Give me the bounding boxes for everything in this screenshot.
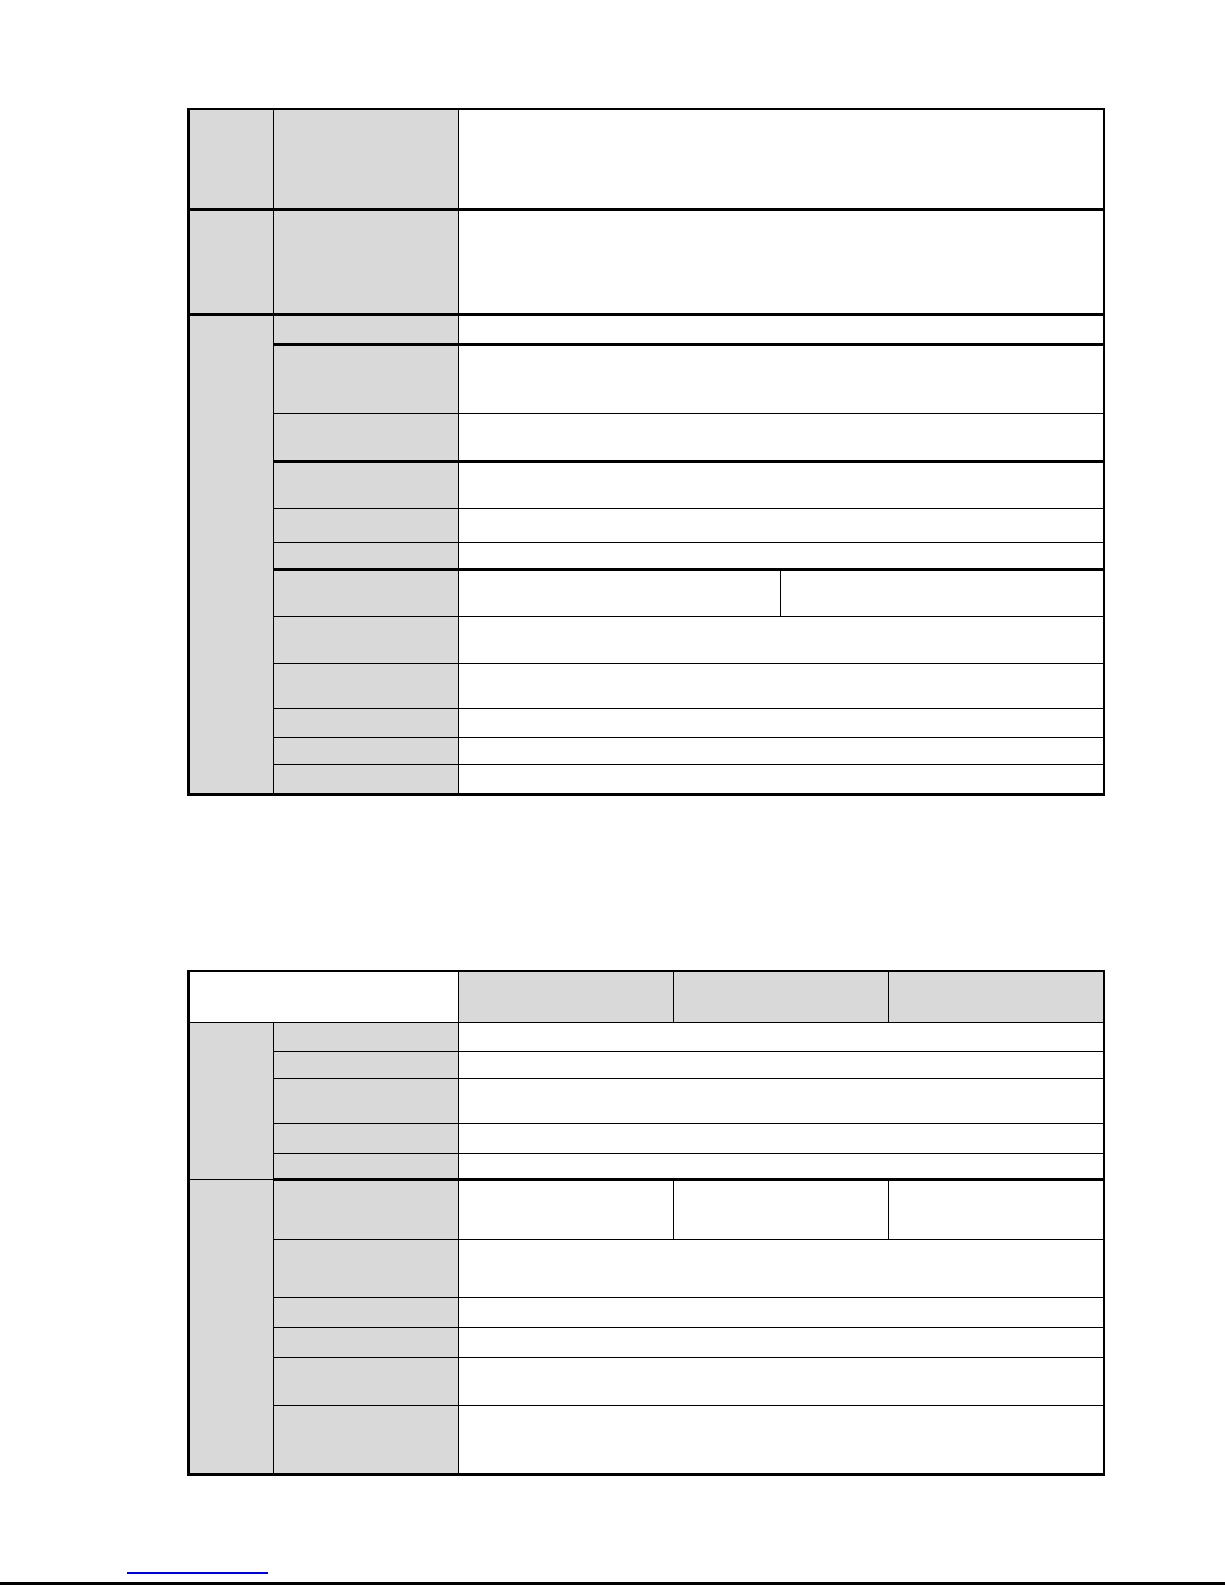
spec-value-cell [459,542,1104,569]
value-cell [459,1123,1104,1153]
column-header-cell [889,971,1104,1022]
spec-field-label-cell [274,542,459,569]
table-row [189,209,1104,314]
value-cell [459,1179,674,1239]
spec-field-label-cell [274,413,459,461]
spec-value-cell-right [781,569,1104,616]
spec-field-label-cell [274,508,459,542]
row-label-cell [274,1179,459,1239]
spec-value-cell [459,616,1104,663]
value-cell [459,1022,1104,1051]
table-row [189,1051,1104,1078]
table-row [189,314,1104,344]
spec-field-label-cell [274,344,459,413]
table-row [189,1239,1104,1297]
column-header-cell [674,971,889,1022]
footer-link-underline[interactable] [127,1572,268,1574]
spec-group-label-cell [189,209,274,314]
spec-field-label-cell [274,314,459,344]
spec-value-cell [459,764,1104,794]
row-label-cell [274,1297,459,1327]
value-cell [889,1179,1104,1239]
spec-value-cell [459,413,1104,461]
table-row [189,109,1104,209]
table-row [189,1123,1104,1153]
document-page [0,0,1225,1585]
table-row [189,737,1104,764]
value-cell [459,1297,1104,1327]
spec-value-cell [459,209,1104,314]
table-row [189,1078,1104,1123]
spec-group-label-cell [189,314,274,794]
spec-field-label-cell [274,209,459,314]
spec-field-label-cell [274,737,459,764]
spec-field-label-cell [274,616,459,663]
row-label-cell [274,1357,459,1405]
column-header-cell [459,971,674,1022]
spec-value-cell [459,663,1104,708]
spec-field-label-cell [274,461,459,508]
row-label-cell [274,1153,459,1179]
spec-field-label-cell [274,708,459,737]
spec-field-label-cell [274,764,459,794]
table-row [189,1022,1104,1051]
spec-field-label-cell [274,569,459,616]
table-row [189,1179,1104,1239]
table-row [189,1357,1104,1405]
spec-field-label-cell [274,109,459,209]
spec-value-cell [459,737,1104,764]
row-label-cell [274,1078,459,1123]
value-cell [459,1405,1104,1474]
table-row [189,1405,1104,1474]
table-row [189,1297,1104,1327]
spec-value-cell [459,314,1104,344]
value-cell [674,1179,889,1239]
row-label-cell [274,1051,459,1078]
table-row [189,461,1104,508]
table-row [189,1153,1104,1179]
row-group-label-cell [189,1179,274,1474]
diagonal-split-header-cell [189,971,459,1022]
row-label-cell [274,1405,459,1474]
table-row [189,508,1104,542]
table-row [189,616,1104,663]
row-label-cell [274,1327,459,1357]
table-row [189,1327,1104,1357]
row-label-cell [274,1022,459,1051]
row-group-label-cell [189,1022,274,1179]
value-cell [459,1153,1104,1179]
spec-value-cell-left [459,569,781,616]
value-cell [459,1239,1104,1297]
spec-value-cell [459,461,1104,508]
table-row [189,542,1104,569]
table-row [189,708,1104,737]
table-row [189,663,1104,708]
spec-field-label-cell [274,663,459,708]
spec-table-1 [187,108,1105,796]
table-row [189,344,1104,413]
table-row [189,569,1104,616]
table-row [189,413,1104,461]
value-cell [459,1327,1104,1357]
spec-value-cell [459,708,1104,737]
spec-group-label-cell [189,109,274,209]
value-cell [459,1078,1104,1123]
value-cell [459,1357,1104,1405]
spec-value-cell [459,344,1104,413]
spec-value-cell [459,109,1104,209]
comparison-table [187,970,1105,1476]
row-label-cell [274,1239,459,1297]
table-row [189,764,1104,794]
spec-value-cell [459,508,1104,542]
row-label-cell [274,1123,459,1153]
value-cell [459,1051,1104,1078]
table-header-row [189,971,1104,1022]
